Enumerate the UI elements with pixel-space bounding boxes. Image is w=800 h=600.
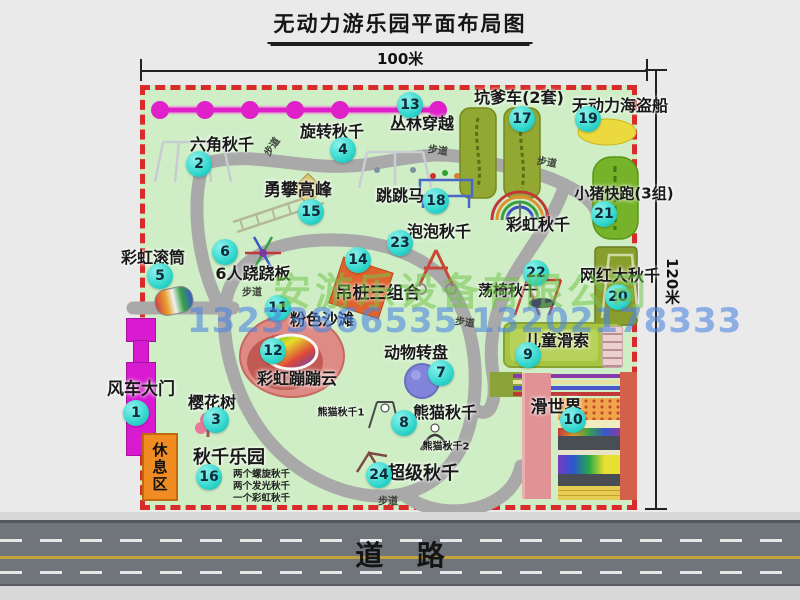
attraction-badge: 19	[575, 106, 601, 132]
attraction-badge: 23	[387, 230, 413, 256]
attraction-badge: 21	[591, 201, 617, 227]
attraction-label: 泡泡秋千	[407, 218, 471, 242]
slide-yellow-band	[558, 486, 620, 500]
watermark-phone: 13233866535 13202178333	[187, 301, 742, 341]
attraction-badge: 3	[203, 407, 229, 433]
attraction-badge: 18	[423, 188, 449, 214]
attraction-badge: 9	[515, 342, 541, 368]
dimension-line-top	[141, 70, 648, 72]
rest-area: 休息区	[142, 433, 178, 501]
dimension-line-right	[655, 70, 657, 510]
windmill-gate-stem	[133, 340, 149, 364]
road: 道路	[0, 520, 800, 586]
attraction-label: 熊猫秋千	[413, 399, 477, 423]
dimension-tick	[645, 69, 667, 71]
attraction-label: 风车大门	[107, 375, 175, 400]
slide-world-zone	[490, 372, 637, 500]
slide-world-salmon-bar	[620, 372, 637, 500]
attraction-label: 超级秋千	[387, 459, 459, 485]
walkway-label: 步道	[378, 493, 398, 508]
road-section: 道路	[0, 512, 800, 600]
page-title: 无动力游乐园平面布局图	[268, 8, 533, 44]
attraction-badge: 6	[212, 239, 238, 265]
dimension-width-label: 100米	[377, 48, 423, 69]
windmill-gate-top	[126, 318, 156, 342]
dimension-height-label: 120米	[662, 258, 683, 304]
panda-swing-2-label: 熊猫秋千2	[423, 438, 470, 453]
attraction-label: 勇攀高峰	[264, 176, 332, 201]
attraction-badge: 7	[428, 360, 454, 386]
attraction-label: 旋转秋千	[300, 118, 364, 142]
dimension-tick	[645, 508, 667, 510]
attraction-label: 坑爹车(2套)	[474, 84, 564, 108]
attraction-badge: 2	[186, 151, 212, 177]
walkway-label: 步道	[242, 284, 262, 299]
dimension-tick	[140, 59, 142, 81]
attraction-badge: 17	[509, 106, 535, 132]
attraction-badge: 16	[196, 464, 222, 490]
attraction-label: 彩虹蹦蹦云	[257, 365, 337, 389]
rest-area-label: 休息区	[150, 442, 171, 493]
attraction-badge: 8	[391, 410, 417, 436]
slide-dark-band	[558, 474, 620, 486]
panda-swing-1-label: 熊猫秋千1	[318, 404, 365, 419]
attraction-badge: 12	[260, 338, 286, 364]
attraction-badge: 13	[397, 92, 423, 118]
attraction-badge: 1	[123, 400, 149, 426]
attraction-badge: 10	[560, 407, 586, 433]
screenshot-root: 无动力游乐园平面布局图 100米 120米	[0, 0, 800, 600]
attraction-badge: 24	[366, 462, 392, 488]
walkway-label: 步道	[427, 140, 449, 158]
swing-park-note: 一个彩虹秋千	[233, 490, 290, 504]
road-label: 道路	[322, 534, 479, 574]
attraction-badge: 5	[147, 263, 173, 289]
slide-dark-band	[558, 436, 620, 450]
rainbow-swing-label: 彩虹秋千	[506, 211, 570, 235]
attraction-label: 跳跳马	[376, 182, 424, 206]
slide-rainbow-band	[558, 455, 620, 474]
attraction-label: 小猪快跑(3组)	[574, 183, 673, 204]
attraction-badge: 4	[330, 137, 356, 163]
walkway-label: 步道	[536, 152, 558, 170]
attraction-badge: 15	[298, 199, 324, 225]
